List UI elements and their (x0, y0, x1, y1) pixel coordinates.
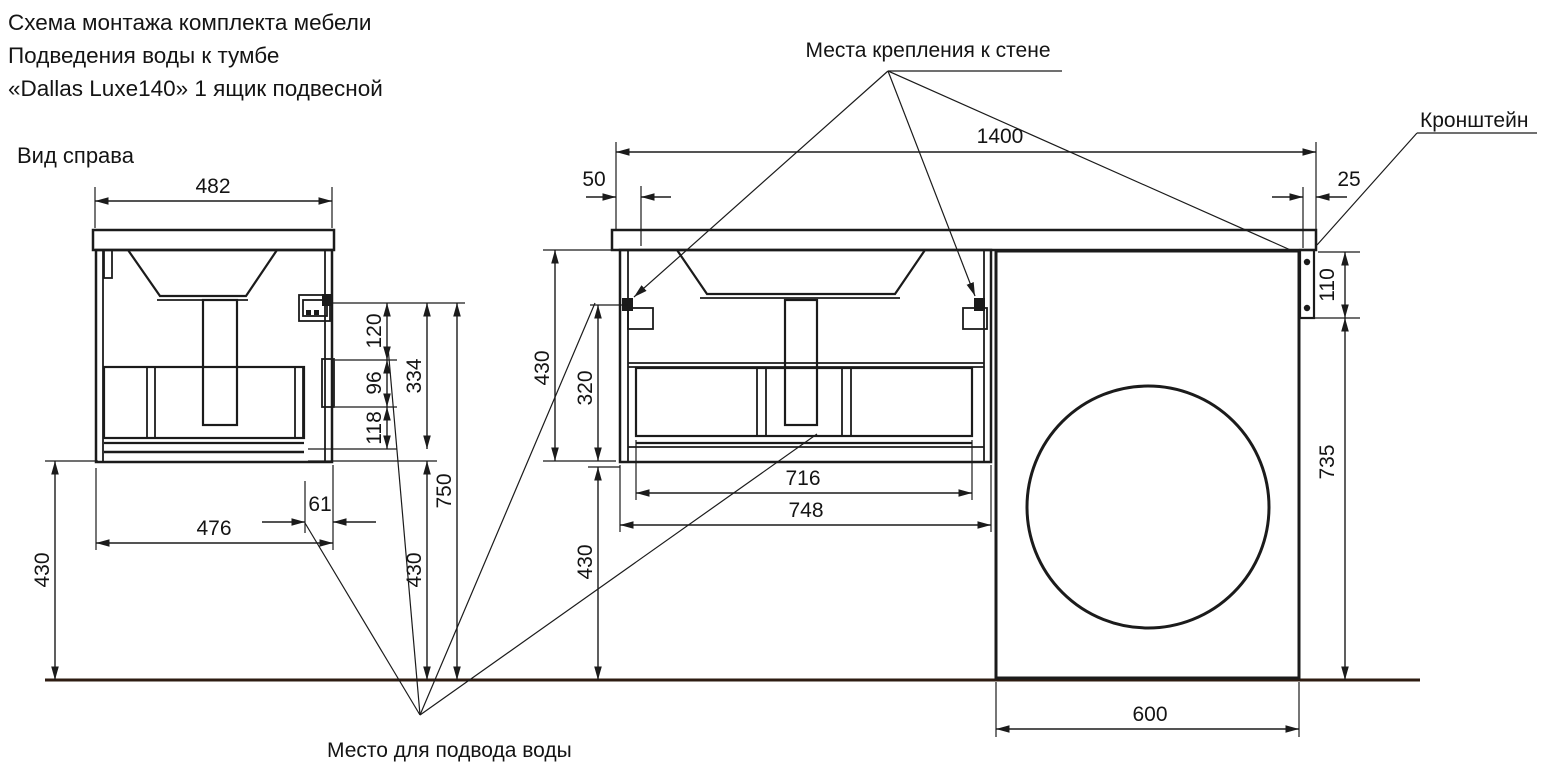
leader-bracket (1317, 133, 1417, 245)
callouts: Места крепления к стене Кронштейн Место … (305, 39, 1537, 762)
dim-label-334: 334 (403, 358, 426, 393)
dim-label-716: 716 (785, 467, 820, 490)
dim-label-120: 120 (363, 313, 386, 348)
bracket-screw-top (1304, 259, 1310, 265)
right-mount-hook (974, 298, 985, 311)
front-countertop (612, 230, 1316, 250)
side-cabinet-body (96, 250, 332, 462)
washing-machine (996, 251, 1299, 678)
left-mount-bracket (628, 308, 653, 329)
dim-label-50: 50 (582, 168, 605, 191)
wall-mount-label: Места крепления к стене (805, 39, 1050, 62)
dim-label-25: 25 (1337, 168, 1360, 191)
bracket-label: Кронштейн (1420, 109, 1528, 132)
front-sink-bowl (677, 250, 925, 294)
washing-machine-door (1027, 386, 1269, 628)
front-view-dimensions: 1400 50 25 430 320 430 716 748 (531, 125, 1361, 737)
side-hanger-hook (322, 294, 332, 306)
title-line-1: Схема монтажа комплекта мебели (8, 10, 371, 35)
dim-label-748: 748 (788, 499, 823, 522)
dim-label-320: 320 (574, 370, 597, 405)
leader-water-side-level (388, 347, 420, 715)
side-view-drawing (93, 230, 334, 462)
title-line-2: Подведения воды к тумбе (8, 43, 279, 68)
side-front-lip (104, 250, 112, 278)
side-view-label: Вид справа (17, 143, 135, 168)
front-view-drawing (612, 230, 1316, 678)
title-block: Схема монтажа комплекта мебели Подведени… (8, 10, 383, 168)
side-hanger-screw-1 (306, 310, 311, 315)
side-drain-pipe (203, 300, 237, 425)
diagram-canvas: Схема монтажа комплекта мебели Подведени… (0, 0, 1555, 771)
dim-label-61: 61 (308, 493, 331, 516)
dim-label-482: 482 (195, 175, 230, 198)
dim-label-600: 600 (1132, 703, 1167, 726)
dim-label-96: 96 (363, 371, 386, 394)
leader-water-side-point (305, 523, 420, 715)
side-sink-bowl (128, 250, 277, 296)
title-line-3: «Dallas Luxe140» 1 ящик подвесной (8, 76, 383, 101)
bracket-screw-bottom (1304, 305, 1310, 311)
dim-label-750: 750 (433, 473, 456, 508)
leader-left-mount (634, 71, 888, 297)
dim-label-110: 110 (1316, 268, 1339, 301)
side-hanger-screw-2 (314, 310, 319, 315)
side-countertop (93, 230, 334, 250)
dim-label-430-clearance: 430 (574, 544, 597, 579)
leader-right-mount (888, 71, 975, 296)
leader-countertop-bracket (888, 71, 1295, 252)
installation-diagram: Схема монтажа комплекта мебели Подведени… (0, 0, 1555, 771)
dim-label-476: 476 (196, 517, 231, 540)
dim-label-118: 118 (363, 411, 386, 444)
water-supply-label: Место для подвода воды (327, 739, 572, 762)
dim-label-430-height: 430 (531, 350, 554, 385)
front-cabinet-body (620, 250, 991, 462)
dim-label-735: 735 (1316, 444, 1339, 479)
dim-label-430-floor: 430 (31, 552, 54, 587)
